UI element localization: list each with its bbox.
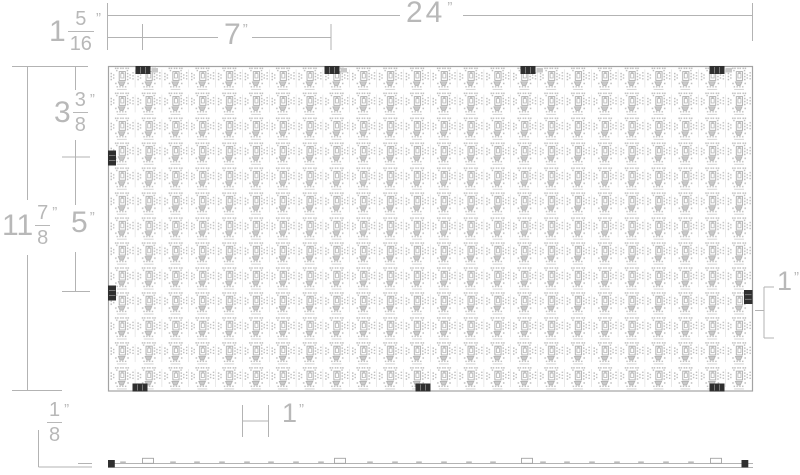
side-component-profile [540,461,546,463]
side-component-profile [466,461,472,463]
side-connector-profile [143,458,154,463]
side-connector-profile [522,458,533,463]
edge-connector [744,290,753,304]
side-component-profile [194,461,200,463]
dim-overall-height: 11 78 ” [2,203,59,249]
dim-numerator: 7 [35,203,50,225]
technical-drawing: 24” 7” 1 516 ” 3 38 ” 11 78 ” 5” 1” 1” 1… [0,0,800,475]
dim-whole: 3 [54,98,71,128]
dim-value: 24 [406,0,445,28]
dim-connector-spacing: 7” [224,20,250,50]
dimension-lines-right [755,287,774,338]
side-component-profile [170,461,176,463]
dimension-lines-bottom-pitch [243,405,269,437]
side-component-profile [367,461,373,463]
dim-denominator: 16 [68,31,94,55]
side-component-profile [688,461,694,463]
edge-connector [108,151,116,166]
dim-module-pitch: 1” [282,400,306,427]
dim-overall-width: 24” [406,0,454,28]
side-component-profile [441,461,447,463]
side-component-profile [589,461,595,463]
side-connector-profile [711,458,722,463]
inch-mark: ” [64,402,71,417]
side-connector-profile [335,458,346,463]
side-component-profile [120,461,126,463]
dim-value: 5 [71,208,88,238]
dim-numerator: 5 [73,9,88,31]
dim-numerator: 1 [47,400,62,422]
side-component-profile [268,461,274,463]
dim-denominator: 8 [73,112,88,136]
dim-whole: 1 [49,17,66,47]
side-profile-view [108,458,753,467]
inch-mark: ” [299,402,306,417]
drawing-canvas [0,0,800,475]
dim-mid-section-height: 5” [71,208,97,238]
side-component-profile [638,461,644,463]
edge-connector [710,384,725,392]
edge-connector [108,286,116,301]
side-end-cap [108,460,115,467]
side-component-profile [416,461,422,463]
inch-mark: ” [794,270,800,285]
side-end-cap [742,460,749,467]
edge-connector [416,384,431,392]
side-component-profile [244,461,250,463]
dim-left-connector-offset: 1 516 ” [49,9,103,55]
side-component-profile [564,461,570,463]
dim-value: 1 [282,400,297,427]
inch-mark: ” [96,11,103,26]
dim-board-thickness: 18 ” [45,400,71,446]
dim-denominator: 8 [35,225,50,249]
inch-mark: ” [90,210,97,225]
dim-value: 1 [777,268,792,295]
inch-mark: ” [90,92,97,107]
side-component-profile [219,461,225,463]
side-component-profile [614,461,620,463]
edge-connector [133,384,148,392]
dim-value: 7 [224,20,241,50]
dim-whole: 11 [2,211,33,241]
side-component-profile [663,461,669,463]
dim-numerator: 3 [73,90,88,112]
side-component-profile [318,461,324,463]
inch-mark: ” [243,22,250,37]
side-component-profile [392,461,398,463]
dim-denominator: 8 [47,422,62,446]
inch-mark: ” [52,205,59,220]
dim-top-section-height: 3 38 ” [54,90,97,136]
side-component-profile [293,461,299,463]
inch-mark: ” [447,0,454,15]
dim-right-segment: 1” [777,268,800,295]
side-component-profile [490,461,496,463]
pcb-panel [108,66,753,392]
